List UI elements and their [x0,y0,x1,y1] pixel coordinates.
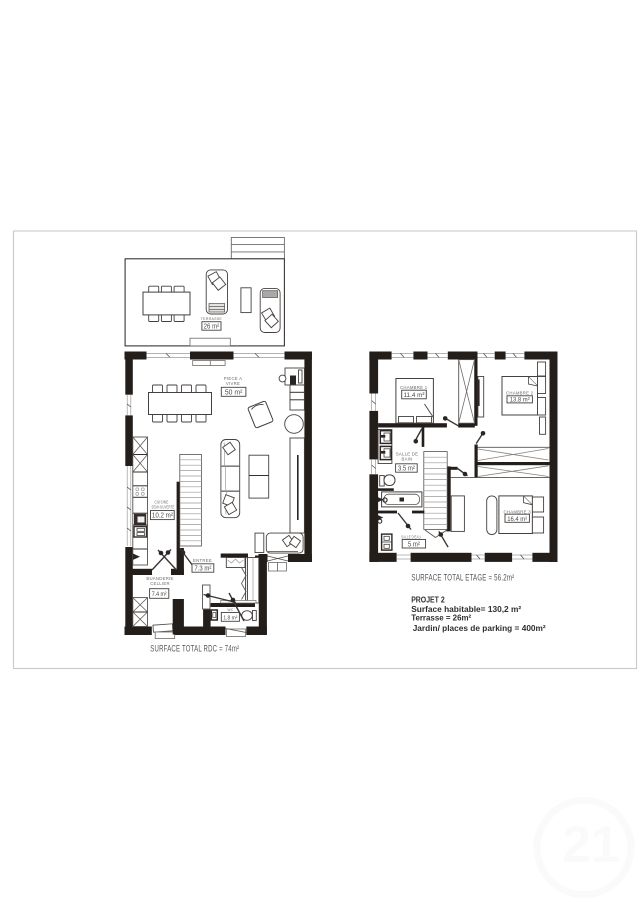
svg-text:13.8 m²: 13.8 m² [510,397,531,404]
svg-text:Jardin/ places de parking = 40: Jardin/ places de parking = 400m² [413,623,546,633]
svg-text:CELLIER: CELLIER [150,581,170,586]
svg-text:CHAMBRE 2: CHAMBRE 2 [506,390,534,395]
svg-text:SURFACE TOTAL RDC = 74m²: SURFACE TOTAL RDC = 74m² [150,644,239,654]
svg-text:SALLE D'EAU: SALLE D'EAU [401,535,421,540]
svg-text:5 m²: 5 m² [408,541,421,548]
svg-text:3.5 m²: 3.5 m² [398,466,416,473]
svg-text:CHAMBRE 3: CHAMBRE 3 [504,509,532,514]
svg-text:11.4 m²: 11.4 m² [404,392,426,399]
svg-text:ENTREE: ENTREE [193,558,212,563]
svg-text:26 m²: 26 m² [204,324,220,331]
svg-text:16.4 m²: 16.4 m² [507,516,528,523]
svg-text:21: 21 [562,816,620,874]
svg-text:VIVRE: VIVRE [226,381,240,386]
svg-text:7.4 m²: 7.4 m² [152,591,168,598]
svg-text:TERRASSE: TERRASSE [201,317,223,321]
svg-text:10.2 m²: 10.2 m² [152,513,174,520]
svg-text:WC: WC [227,608,233,612]
svg-text:SURFACE TOTAL ETAGE = 56.2m²: SURFACE TOTAL ETAGE = 56.2m² [411,573,514,583]
svg-text:CHAMBRE 1: CHAMBRE 1 [400,385,428,390]
svg-text:7.3 m²: 7.3 m² [194,566,212,573]
svg-text:BAIN: BAIN [401,457,412,462]
svg-text:50 m²: 50 m² [225,387,243,396]
svg-text:1.8 m²: 1.8 m² [223,615,237,621]
svg-text:SEMI-OUVERTE: SEMI-OUVERTE [152,505,175,510]
svg-text:Terrasse = 26m²: Terrasse = 26m² [411,613,471,623]
